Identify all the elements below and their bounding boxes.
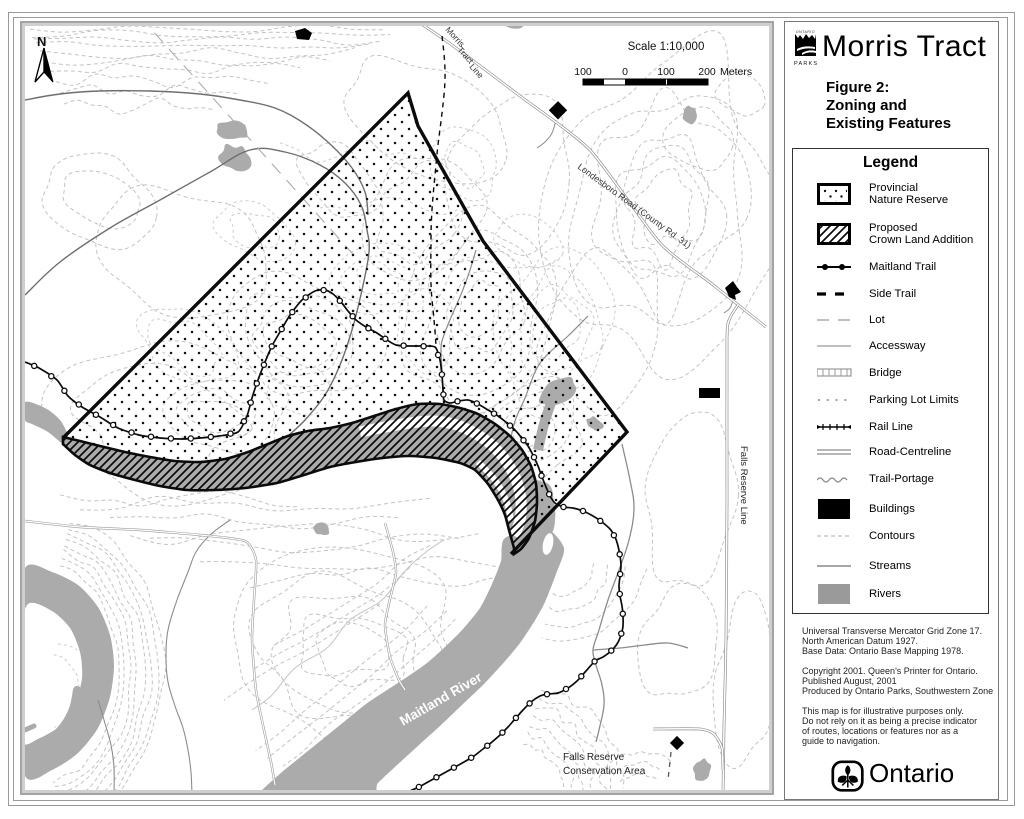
svg-text:200: 200	[698, 66, 716, 78]
svg-text:Conservation Area: Conservation Area	[563, 766, 646, 777]
svg-text:100: 100	[657, 66, 675, 78]
svg-text:100: 100	[574, 66, 592, 78]
svg-text:Falls Reserve Line: Falls Reserve Line	[738, 446, 749, 525]
svg-text:Falls Reserve: Falls Reserve	[563, 752, 625, 763]
svg-text:Line: Line	[468, 62, 486, 81]
svg-text:Londesboro Road (County Rd. 31: Londesboro Road (County Rd. 31)	[576, 162, 693, 251]
svg-text:0: 0	[622, 66, 628, 78]
svg-text:Meters: Meters	[720, 66, 752, 78]
svg-text:Scale 1:10,000: Scale 1:10,000	[628, 41, 705, 53]
svg-text:N: N	[37, 34, 46, 49]
